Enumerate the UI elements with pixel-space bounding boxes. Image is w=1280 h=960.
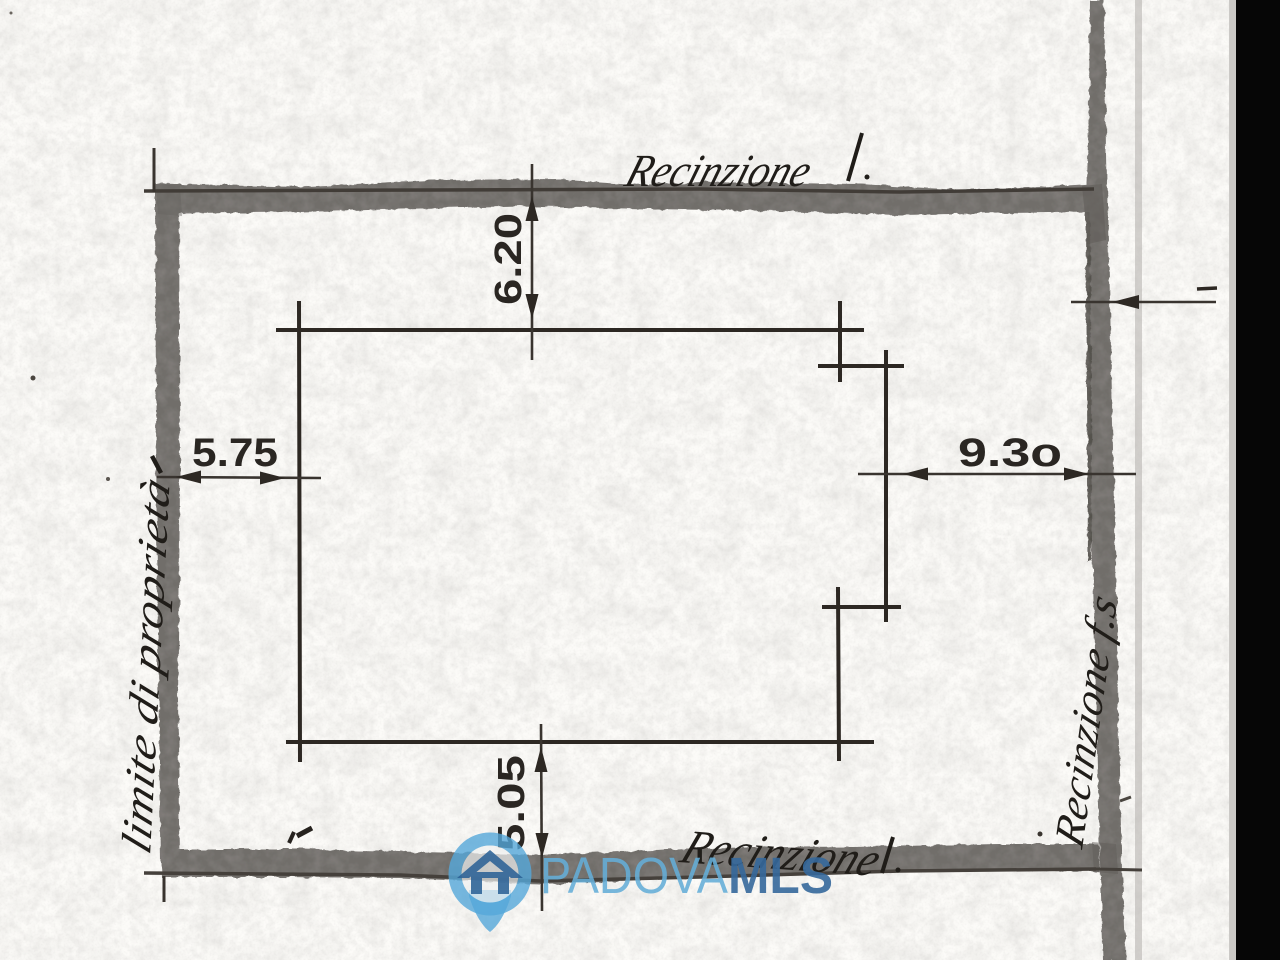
svg-text:5.75: 5.75 (192, 431, 278, 475)
svg-text:PADOVA: PADOVA (540, 847, 728, 904)
svg-text:MLS: MLS (728, 847, 833, 904)
svg-text:9.3o: 9.3o (958, 431, 1062, 475)
svg-text:6.20: 6.20 (488, 213, 530, 305)
svg-text:Recinzione: Recinzione (619, 146, 818, 197)
